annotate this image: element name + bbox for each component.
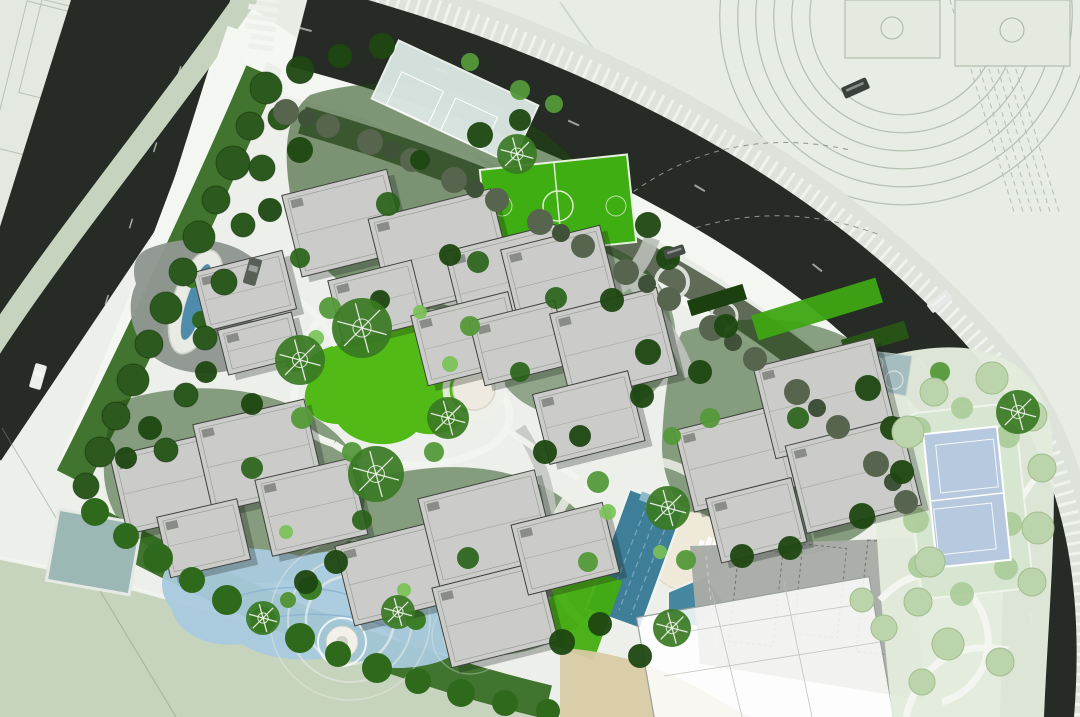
lake-island-planting (280, 592, 296, 608)
school-court-outline (955, 0, 1070, 66)
school-court-outline (845, 0, 940, 58)
site-plan-viewport (0, 0, 1080, 717)
site-plan (0, 0, 1080, 717)
